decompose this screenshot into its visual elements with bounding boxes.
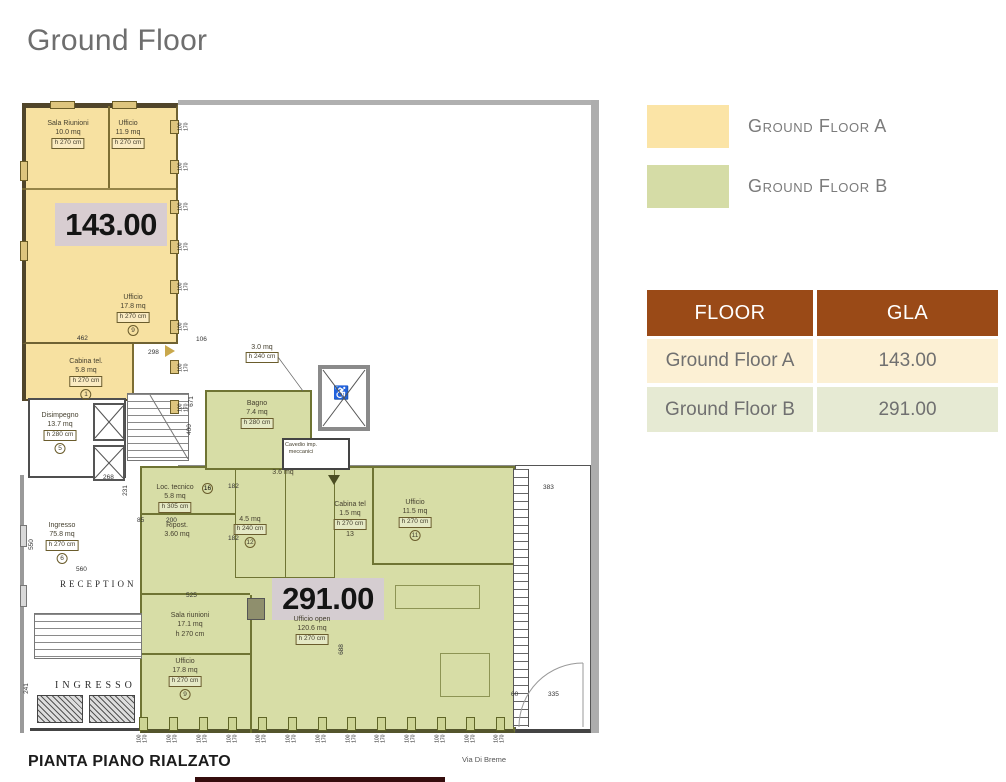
legend-swatch-ground-floor-b bbox=[647, 165, 729, 208]
table-cell-floor-a: Ground Floor A bbox=[647, 339, 813, 383]
page-title: Ground Floor bbox=[27, 24, 207, 58]
legend-swatch-ground-floor-a bbox=[647, 105, 729, 148]
street-label: Via Di Breme bbox=[462, 755, 506, 764]
table-header-gla: GLA bbox=[817, 290, 998, 336]
table-cell-gla-a: 143.00 bbox=[817, 339, 998, 383]
cropped-bar bbox=[195, 777, 445, 782]
table-header-floor: FLOOR bbox=[647, 290, 813, 336]
plan-caption: PIANTA PIANO RIALZATO bbox=[28, 753, 231, 771]
table-cell-gla-b: 291.00 bbox=[817, 387, 998, 432]
gla-table: FLOOR GLA Ground Floor A 143.00 Ground F… bbox=[647, 290, 998, 432]
floor-plan: ♿ RECEPTION INGRESSO 143.00 291.00 Sala … bbox=[20, 95, 610, 782]
plan-linework bbox=[20, 95, 610, 782]
legend-label-ground-floor-a: Ground Floor A bbox=[748, 105, 887, 148]
legend-label-ground-floor-b: Ground Floor B bbox=[748, 165, 888, 208]
table-cell-floor-b: Ground Floor B bbox=[647, 387, 813, 432]
